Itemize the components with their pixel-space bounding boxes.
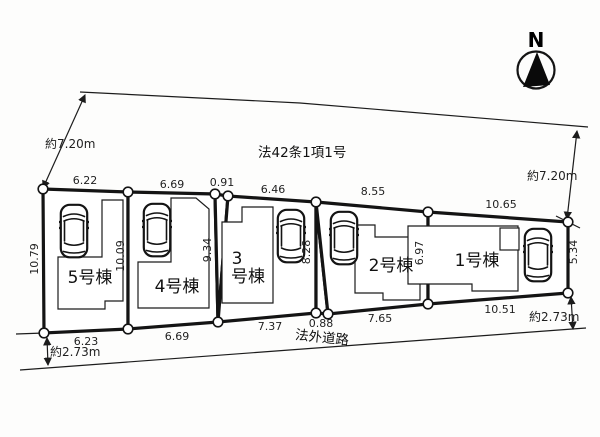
dim-top-lot1: 10.65: [485, 198, 517, 211]
dim-top-lot5: 6.22: [73, 174, 98, 187]
road-width-left-arrow: [47, 338, 48, 365]
dim-bottom-lot4: 6.69: [165, 330, 190, 343]
dim-side-west: 10.79: [28, 243, 41, 275]
road-label: 法外道路: [294, 327, 350, 349]
dim-bottom-lot2: 7.65: [368, 312, 393, 325]
dim-top-lot2: 8.55: [361, 185, 386, 198]
depth-label-right: 約7.20m: [527, 168, 577, 183]
dim-side-east: 5.34: [567, 240, 580, 265]
car-icon: [522, 229, 554, 281]
site-plan-drawing: N 6.22 6.69 0.91 6.46 8.55 10.65 6.23 6.…: [0, 0, 600, 437]
lot-3-label-line2: 号棟: [231, 267, 265, 287]
dim-side-lot4-lot3: 9.34: [201, 238, 214, 263]
lot-3-house-footprint: [222, 207, 273, 303]
lot-3-label-line1: 3: [232, 249, 243, 269]
north-boundary-line: [80, 92, 588, 127]
compass-needle-icon: [523, 52, 550, 87]
car-icon: [58, 205, 90, 257]
dim-side-lot5-lot4: 10.09: [114, 240, 127, 272]
lot-4-label: 4号棟: [155, 277, 200, 297]
dim-bottom-lot1: 10.51: [484, 303, 516, 316]
road-width-label-right: 約2.73m: [529, 309, 579, 324]
lot-1-house-annex: [500, 228, 519, 250]
lot-1-label: 1号棟: [455, 251, 500, 271]
depth-label-left: 約7.20m: [45, 136, 95, 151]
dim-side-lot2-lot1: 6.97: [413, 241, 426, 266]
car-icon: [328, 212, 360, 264]
legal-note: 法42条1項1号: [258, 144, 346, 161]
car-icon: [141, 204, 173, 256]
dim-top-lot4: 6.69: [160, 178, 185, 191]
dim-bottom-lot3: 7.37: [258, 320, 283, 333]
dim-top-strip: 0.91: [210, 176, 235, 189]
dim-top-lot3: 6.46: [261, 183, 286, 196]
lot-2-label: 2号棟: [369, 256, 414, 276]
site-plan-page: N 6.22 6.69 0.91 6.46 8.55 10.65 6.23 6.…: [0, 0, 600, 437]
compass-north-label: N: [528, 28, 545, 52]
lot-5-label: 5号棟: [68, 268, 113, 288]
dim-side-lot3-lot2: 8.28: [300, 240, 313, 265]
road-width-label-left: 約2.73m: [50, 344, 100, 359]
north-compass: N: [518, 28, 555, 89]
